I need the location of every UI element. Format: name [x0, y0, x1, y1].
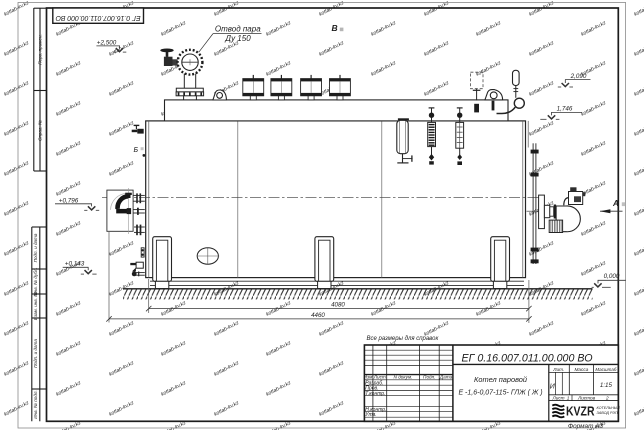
svg-text:Б: Б [134, 147, 139, 154]
svg-text:А: А [612, 199, 619, 208]
svg-text:2,090: 2,090 [570, 73, 587, 80]
svg-text:Инв. № подл.: Инв. № подл. [33, 390, 38, 419]
svg-text:Масса: Масса [574, 367, 588, 372]
svg-text:ЕГ 0.16.007.011.00.000 ВО: ЕГ 0.16.007.011.00.000 ВО [56, 14, 141, 23]
svg-text:Инв. № дубл.: Инв. № дубл. [33, 267, 38, 295]
svg-text:Подп. и дата: Подп. и дата [33, 339, 38, 368]
svg-text:Подп.: Подп. [423, 375, 435, 380]
svg-text:Формат А3: Формат А3 [568, 423, 603, 430]
svg-text:Все размеры для справок: Все размеры для справок [367, 336, 440, 342]
svg-text:ЕГ 0.16.007.011.00.000 ВО: ЕГ 0.16.007.011.00.000 ВО [462, 353, 593, 365]
svg-text:KVZR: KVZR [566, 404, 595, 419]
svg-text:Е -1,6-0,07-115- ГЛЖ ( Ж ): Е -1,6-0,07-115- ГЛЖ ( Ж ) [458, 390, 542, 397]
svg-text:1,746: 1,746 [557, 106, 573, 113]
svg-text:Отвод пара: Отвод пара [215, 24, 261, 33]
svg-text:КОТЕЛЬНЫЙ: КОТЕЛЬНЫЙ [597, 406, 621, 410]
svg-text:2: 2 [605, 396, 609, 401]
svg-text:Т.контр.: Т.контр. [365, 391, 385, 397]
svg-text:+0,796: +0,796 [59, 197, 79, 204]
svg-text:Перв. примен.: Перв. примен. [37, 34, 42, 65]
svg-text:4080: 4080 [331, 302, 345, 309]
svg-text:Подп. и дата: Подп. и дата [33, 233, 38, 262]
svg-text:Котел паровой: Котел паровой [474, 375, 527, 384]
svg-text:Листов: Листов [577, 396, 596, 401]
svg-text:Взам. инв. №: Взам. инв. № [33, 292, 38, 320]
svg-text:В: В [332, 23, 338, 33]
svg-text:1:15: 1:15 [600, 382, 613, 389]
svg-text:Утв.: Утв. [365, 412, 376, 418]
svg-text:4460: 4460 [311, 312, 325, 319]
svg-text:Лит.: Лит. [552, 367, 564, 372]
svg-text:Лист: Лист [373, 375, 386, 380]
svg-text:Изм.: Изм. [364, 375, 374, 380]
svg-text:ЗАВОД РЭП: ЗАВОД РЭП [597, 411, 618, 415]
svg-text:Масштаб: Масштаб [595, 367, 616, 372]
svg-text:Дата: Дата [439, 375, 453, 380]
svg-text:Лист: Лист [552, 396, 565, 401]
svg-text:Справ. №: Справ. № [37, 120, 42, 141]
svg-text:Ду 150: Ду 150 [224, 34, 251, 43]
svg-text:1: 1 [567, 396, 570, 401]
svg-text:N докум.: N докум. [394, 375, 413, 380]
svg-text:+0,143: +0,143 [65, 261, 85, 268]
svg-text:0,000: 0,000 [604, 273, 620, 280]
svg-text:+2,500: +2,500 [97, 39, 117, 46]
